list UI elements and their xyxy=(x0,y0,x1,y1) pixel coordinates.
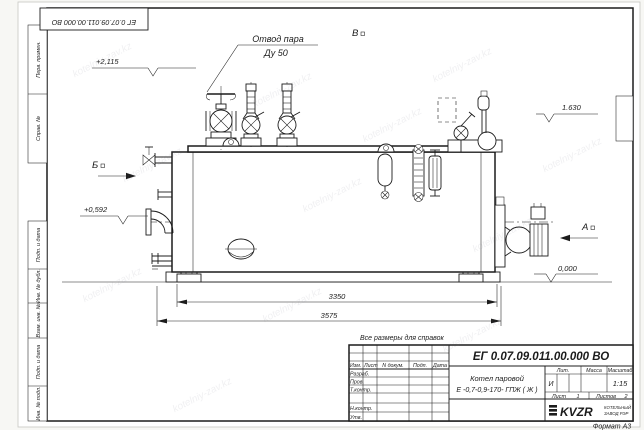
svg-text:В: В xyxy=(352,28,359,39)
svg-text:0,000: 0,000 xyxy=(558,264,578,273)
logo-sub2: ЗАВОД РЭР xyxy=(604,411,629,416)
col-list: Лист xyxy=(363,363,378,369)
product-name-line1: Котел паровой xyxy=(470,374,525,383)
col-izm: Изм. xyxy=(350,363,361,369)
row-utv: Утв. xyxy=(350,415,362,421)
svg-text:А: А xyxy=(581,222,588,233)
mass-label: Масса xyxy=(586,368,602,374)
sheets-value: 2 xyxy=(623,394,627,400)
title-block: Изм. Лист N докум. Подп. Дата Разраб. Пр… xyxy=(349,345,633,421)
margin-label: Справ. № xyxy=(36,116,42,141)
svg-text:+0,592: +0,592 xyxy=(84,205,108,214)
top-right-cell xyxy=(616,96,633,141)
sheet-label: Лист xyxy=(551,394,567,400)
lit-label: Лит. xyxy=(556,368,569,374)
col-podp: Подп. xyxy=(413,363,427,369)
svg-text:1.630: 1.630 xyxy=(562,103,582,112)
svg-text:3350: 3350 xyxy=(329,292,347,301)
steam-outlet-text: Отвод пара xyxy=(252,34,303,44)
product-name-line2: Е -0,7-0,9-170- ГПЖ ( Ж ) xyxy=(456,387,537,394)
margin-label: Инв. № дубл. xyxy=(36,269,42,303)
doc-number: ЕГ 0.07.09.011.00.000 ВО xyxy=(473,351,609,363)
logo-sub1: КОТЕЛЬНЫЙ xyxy=(604,405,632,410)
steam-outlet-dn: Ду 50 xyxy=(263,48,287,58)
drawing-sheet: Перв. примен. Справ. № Подп. и дата Инв.… xyxy=(0,0,644,430)
svg-text:+2,115: +2,115 xyxy=(96,57,119,66)
svg-text:3575: 3575 xyxy=(321,311,339,320)
scale-value: 1:15 xyxy=(613,379,628,388)
logo-text: KVZR xyxy=(560,405,593,419)
row-tkontr: Т.контр. xyxy=(350,388,371,394)
boiler-body xyxy=(172,146,495,272)
top-stamp: ЕГ 0.07.09.011.00.000 ВО xyxy=(40,8,148,30)
sheet-value: 1 xyxy=(576,394,579,400)
margin-column: Перв. примен. Справ. № Подп. и дата Инв.… xyxy=(28,25,47,421)
row-nkontr: Н.контр. xyxy=(350,406,372,412)
margin-label: Перв. примен. xyxy=(36,41,42,78)
row-prov: Пров. xyxy=(350,380,364,386)
col-ndoc: N докум. xyxy=(382,363,403,369)
blueprint-page: Перв. примен. Справ. № Подп. и дата Инв.… xyxy=(0,0,644,430)
margin-label: Инв. № подл. xyxy=(36,386,42,420)
margin-label: Взам. инв. № xyxy=(36,303,42,337)
sheets-label: Листов xyxy=(595,394,616,400)
reference-note: Все размеры для справок xyxy=(360,334,445,342)
svg-text:Б: Б xyxy=(92,160,98,171)
doc-number-rotated: ЕГ 0.07.09.011.00.000 ВО xyxy=(51,18,136,27)
row-razrab: Разраб. xyxy=(350,372,369,378)
margin-label: Подп. и дата xyxy=(36,345,42,379)
margin-label: Подп. и дата xyxy=(36,228,42,262)
col-data: Дата xyxy=(432,363,447,369)
format-label: Формат А3 xyxy=(593,424,631,430)
scale-label: Масштаб xyxy=(608,368,634,374)
